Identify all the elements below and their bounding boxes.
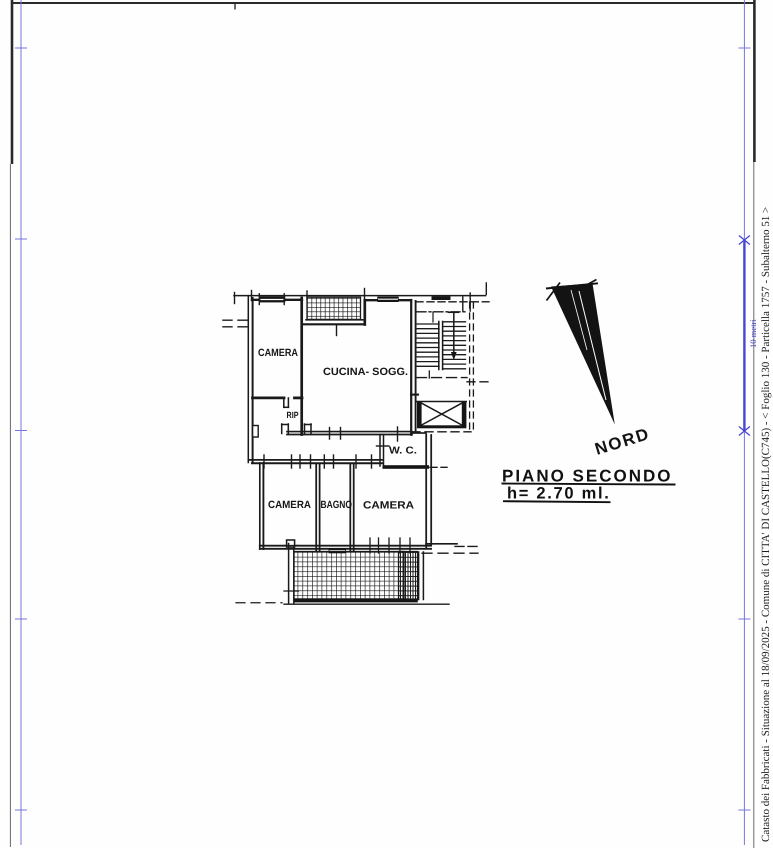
svg-text:W. C.: W. C. (389, 446, 417, 457)
svg-text:PIANO SECONDO: PIANO SECONDO (502, 467, 673, 486)
svg-text:CAMERA: CAMERA (258, 347, 298, 359)
svg-text:h= 2.70 ml.: h= 2.70 ml. (507, 484, 611, 502)
svg-text:CAMERA: CAMERA (268, 499, 311, 511)
svg-text:Catasto dei Fabbricati - Situa: Catasto dei Fabbricati - Situazione al 1… (760, 207, 772, 842)
svg-text:CUCINA- SOGG.: CUCINA- SOGG. (323, 366, 408, 378)
svg-text:CAMERA: CAMERA (363, 500, 414, 512)
svg-text:RIP: RIP (287, 410, 299, 420)
svg-text:BAGNO: BAGNO (321, 499, 353, 511)
svg-text:NORD: NORD (593, 424, 653, 459)
svg-text:10 metri: 10 metri (748, 319, 758, 348)
